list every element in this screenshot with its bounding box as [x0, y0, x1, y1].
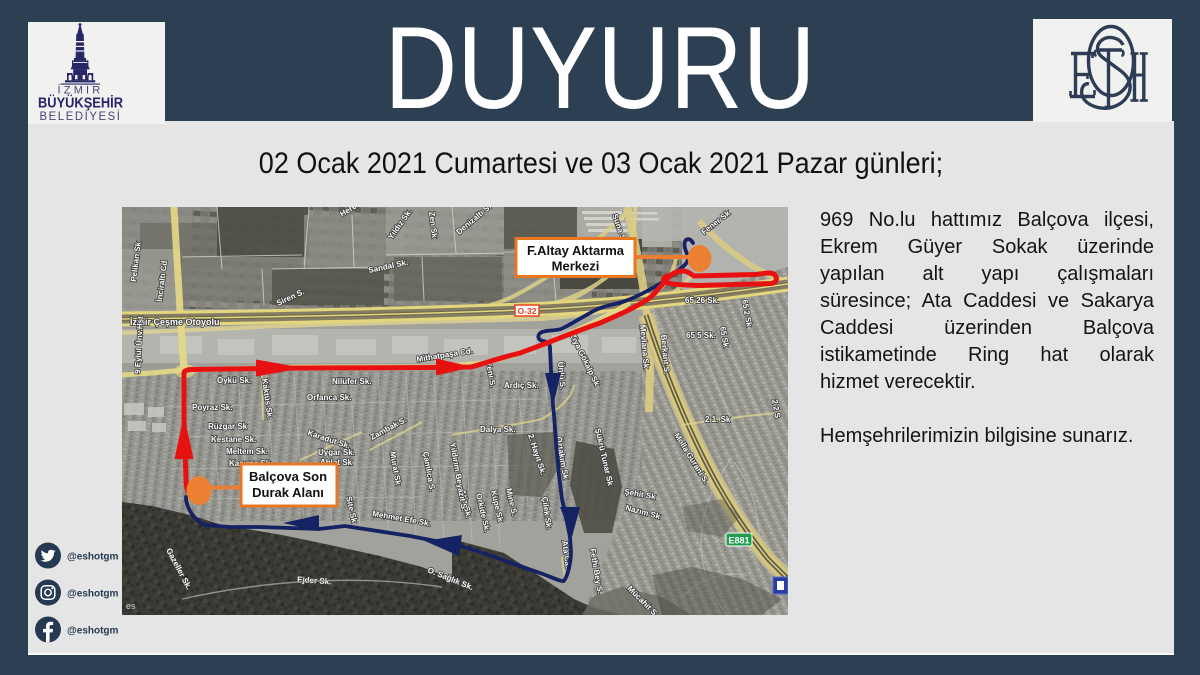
- svg-text:Rüzgar Sk: Rüzgar Sk: [208, 422, 248, 431]
- svg-text:2 1. Sk: 2 1. Sk: [705, 415, 731, 424]
- svg-text:Kestane Sk.: Kestane Sk.: [211, 435, 256, 444]
- svg-text:E881: E881: [728, 536, 749, 546]
- svg-text:Poyraz Sk.: Poyraz Sk.: [192, 403, 232, 412]
- svg-text:65 5 Sk.: 65 5 Sk.: [686, 331, 716, 340]
- svg-text:@eshotgm: @eshotgm: [67, 589, 119, 600]
- svg-text:Durak Alanı: Durak Alanı: [252, 485, 324, 500]
- svg-text:65 26 Sk.: 65 26 Sk.: [685, 296, 719, 305]
- svg-text:Uygar Sk.: Uygar Sk.: [318, 448, 355, 457]
- svg-text:Merkezi: Merkezi: [552, 259, 600, 274]
- svg-text:BÜYÜKŞEHİR: BÜYÜKŞEHİR: [38, 94, 123, 111]
- svg-text:Balçova Son: Balçova Son: [249, 469, 327, 484]
- svg-text:Ardıç Sk.: Ardıç Sk.: [504, 381, 539, 390]
- svg-text:Orfanca Sk.: Orfanca Sk.: [307, 393, 351, 402]
- svg-text:Öykü Sk.: Öykü Sk.: [217, 376, 251, 385]
- svg-text:Nilüfer Sk.: Nilüfer Sk.: [332, 377, 372, 386]
- svg-text:Dalya Sk.: Dalya Sk.: [480, 425, 516, 434]
- svg-text:BELEDİYESİ: BELEDİYESİ: [40, 110, 122, 123]
- svg-text:Meltem Sk.: Meltem Sk.: [226, 447, 268, 456]
- svg-text:F.Altay Aktarma: F.Altay Aktarma: [527, 243, 625, 258]
- svg-text:O-32: O-32: [518, 306, 537, 316]
- svg-text:@eshotgm: @eshotgm: [67, 626, 119, 637]
- svg-text:@eshotgm: @eshotgm: [67, 552, 119, 563]
